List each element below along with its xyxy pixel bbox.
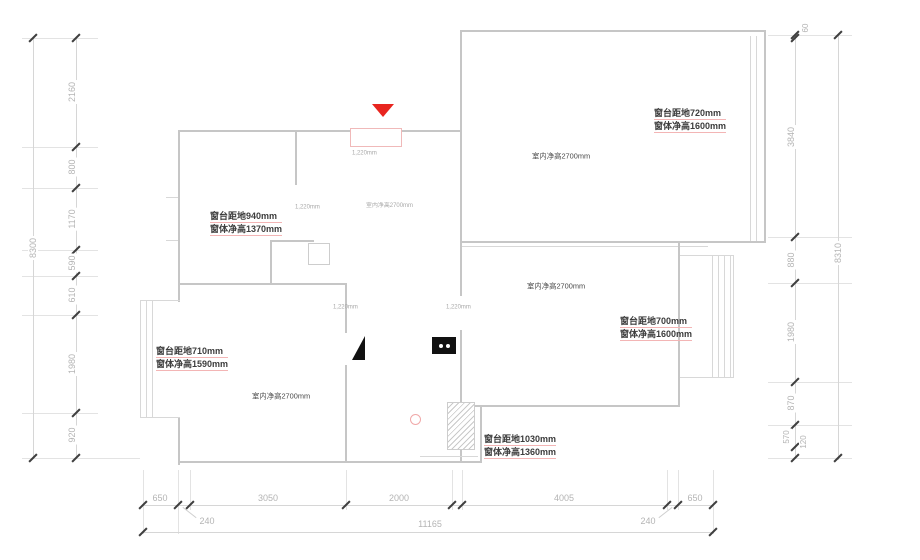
window-annotation: 窗台距地710mm 窗体净高1590mm [156,345,228,371]
window-glazing-line [152,300,153,418]
dimension-label: 610 [67,285,77,304]
column-outline [308,243,330,265]
window-glazing-line [750,36,751,241]
wall-segment [178,130,180,302]
window-annotation: 窗台距地720mm 窗体净高1600mm [654,107,726,133]
ceiling-height-label: 室内净高2700mm [532,151,590,161]
fixture-circle [410,414,421,425]
extension-line [768,237,852,238]
opening-width-label: 1,220mm [446,304,471,310]
leader-line [658,507,672,518]
window-glazing-line [730,256,731,377]
window-glazing-line [756,36,757,241]
wall-segment [460,30,462,132]
window-glazing-line [146,300,147,418]
bay-window-cap [680,255,734,256]
door-swing-symbol [352,336,365,360]
dimension-label: 1980 [786,320,796,344]
outlet-symbol [432,337,456,354]
annotation-line: 窗台距地720mm [654,107,726,120]
wall-segment [178,461,482,463]
dimension-label: 880 [786,250,796,269]
dimension-label: 11165 [416,519,444,529]
wall-segment [345,365,347,463]
dimension-label: 570 [782,428,792,445]
dimension-label: 2160 [67,80,77,104]
entry-marker-icon [372,104,394,117]
window-jamb-mark [166,240,178,241]
annotation-line: 窗体净高1600mm [620,328,692,341]
wall-segment [400,130,462,132]
flue-shaft-hatch [447,402,475,450]
extension-line [768,425,852,426]
dimension-label: 3840 [786,125,796,149]
wall-segment [460,30,766,32]
dimension-label: 8310 [833,241,843,265]
annotation-line: 窗体净高1600mm [654,120,726,133]
dimension-line [143,532,713,533]
annotation-line: 窗体净高1360mm [484,446,556,459]
dimension-label: 870 [786,393,796,412]
wall-segment [480,407,482,463]
extension-line [768,458,852,459]
window-glazing-line [724,256,725,377]
opening-width-label: 1,220mm [333,304,358,310]
annotation-line: 窗体净高1370mm [210,223,282,236]
window-annotation: 窗台距地1030mm 窗体净高1360mm [484,433,556,459]
window-glazing-line [140,300,141,418]
window-glazing-line [712,256,713,377]
dimension-label: 1170 [67,207,77,230]
floor-plan-canvas: 窗台距地720mm 窗体净高1600mm 窗台距地940mm 窗体净高1370m… [0,0,920,560]
ceiling-height-label: 室内净高2700mm [366,201,413,210]
dimension-label: 3050 [256,493,280,503]
dimension-label: 650 [685,493,704,503]
wall-segment [460,132,462,296]
wall-segment [295,132,297,185]
annotation-line: 窗台距地940mm [210,210,282,223]
wall-segment [178,130,352,132]
wall-segment [764,30,766,243]
wall-segment [270,240,272,285]
window-annotation: 窗台距地700mm 窗体净高1600mm [620,315,692,341]
dimension-label: 1980 [67,352,77,376]
window-glazing-line [718,256,719,377]
annotation-line: 窗台距地1030mm [484,433,556,446]
wall-segment [460,405,680,407]
extension-line [22,458,140,459]
dimension-label: 920 [67,425,77,444]
wall-segment [178,283,347,285]
window-annotation: 窗台距地940mm 窗体净高1370mm [210,210,282,236]
opening-width-label: 1,220mm [352,150,377,156]
window-glazing-line [420,456,478,457]
dimension-label: 2000 [387,493,411,503]
dimension-label: 120 [799,433,809,450]
dimension-label: 650 [150,493,169,503]
dimension-label: 800 [67,157,77,176]
annotation-line: 窗台距地700mm [620,315,692,328]
ceiling-height-label: 室内净高2700mm [252,391,310,401]
entry-door-outline [350,128,402,147]
extension-line [768,283,852,284]
wall-segment [178,418,180,465]
dimension-tick [708,527,717,536]
dimension-line [143,505,713,506]
annotation-line: 窗体净高1590mm [156,358,228,371]
dimension-label: 4005 [552,493,576,503]
wall-inner-line [460,246,708,247]
dimension-label: 60 [801,22,811,35]
wall-segment [460,241,766,243]
bay-window-cap [680,377,734,378]
window-glazing-line [733,255,734,378]
window-jamb-mark [166,197,178,198]
dimension-label: 8300 [28,236,38,260]
ceiling-height-label: 室内净高2700mm [527,281,585,291]
dimension-label: 240 [638,516,657,526]
extension-line [768,382,852,383]
annotation-line: 窗台距地710mm [156,345,228,358]
dimension-label: 240 [197,516,216,526]
dimension-label: 590 [67,253,77,272]
extension-line [768,35,852,36]
opening-width-label: 1,220mm [295,204,320,210]
wall-segment [270,240,314,242]
